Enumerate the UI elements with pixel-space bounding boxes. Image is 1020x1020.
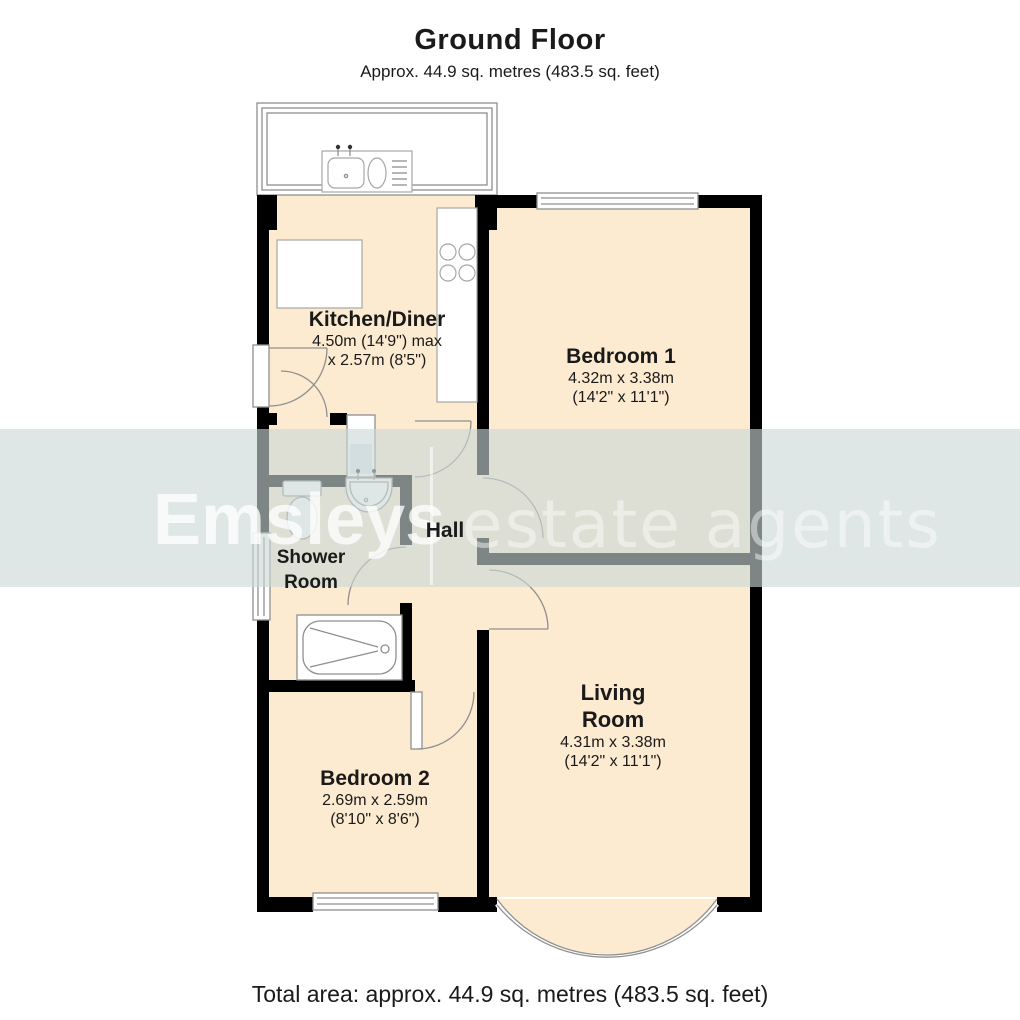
- bedroom1-window: [537, 193, 698, 209]
- label-hall: Hall: [295, 518, 595, 543]
- label-shower-room: Shower Room: [161, 545, 461, 595]
- room-name: Room: [463, 706, 763, 733]
- room-name: Room: [161, 570, 461, 595]
- label-living-room: Living Room 4.31m x 3.38m (14'2" x 11'1"…: [463, 679, 763, 771]
- room-dimensions: (14'2" x 11'1"): [471, 388, 771, 407]
- room-name: Shower: [161, 545, 461, 570]
- room-name: Living: [463, 679, 763, 706]
- bathtub-icon: [297, 615, 402, 680]
- floorplan-page: Ground Floor Approx. 44.9 sq. metres (48…: [0, 0, 1020, 1020]
- room-name: Kitchen/Diner: [227, 307, 527, 332]
- room-dimensions: 4.31m x 3.38m: [463, 733, 763, 752]
- bedroom2-window: [313, 893, 438, 910]
- label-bedroom-1: Bedroom 1 4.32m x 3.38m (14'2" x 11'1"): [471, 344, 771, 407]
- label-bedroom-2: Bedroom 2 2.69m x 2.59m (8'10" x 8'6"): [225, 766, 525, 829]
- room-name: Hall: [295, 518, 595, 543]
- room-name: Bedroom 2: [225, 766, 525, 791]
- room-dimensions: 4.32m x 3.38m: [471, 369, 771, 388]
- total-area-text: Total area: approx. 44.9 sq. metres (483…: [0, 981, 1020, 1008]
- room-name: Bedroom 1: [471, 344, 771, 369]
- room-dimensions: (8'10" x 8'6"): [225, 810, 525, 829]
- sink-icon: [322, 145, 412, 192]
- room-dimensions: 2.69m x 2.59m: [225, 791, 525, 810]
